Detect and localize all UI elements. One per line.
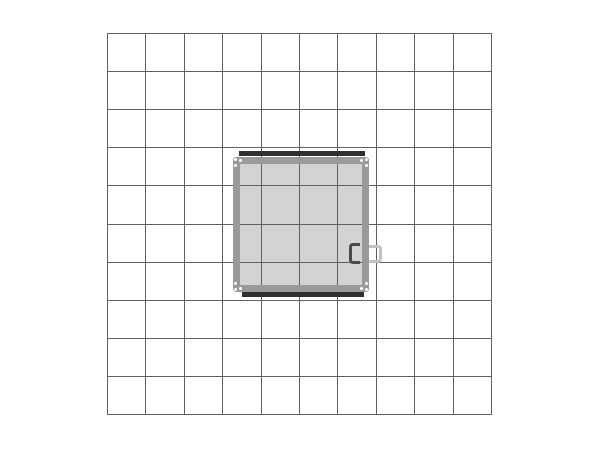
booth-bottom-edge-bar (242, 292, 364, 297)
grid-line-vertical (491, 33, 492, 415)
grid-line-vertical (376, 33, 377, 415)
grid-line-vertical (222, 33, 223, 415)
fastener-dot (360, 287, 363, 290)
grid-line-horizontal (107, 300, 492, 301)
grid-line-horizontal (107, 338, 492, 339)
fastener-dot (239, 287, 242, 290)
grid-line-horizontal (107, 376, 492, 377)
fastener-dot (365, 282, 368, 285)
booth-frame (233, 157, 369, 292)
floor-plan-canvas (0, 0, 600, 450)
grid-line-vertical (453, 33, 454, 415)
grid-line-horizontal (107, 109, 492, 110)
grid-line-vertical (414, 33, 415, 415)
door-handle-outer-icon (369, 245, 382, 263)
booth-top-edge-bar (239, 151, 365, 156)
fastener-dot (365, 164, 368, 167)
fastener-dot (360, 159, 363, 162)
grid-line-horizontal (107, 71, 492, 72)
grid-line-horizontal (107, 147, 492, 148)
grid-line-horizontal (107, 414, 492, 415)
fastener-dot (234, 164, 237, 167)
corner-fastener-bottom-left (233, 280, 245, 292)
fastener-dot (234, 158, 237, 161)
grid-line-vertical (145, 33, 146, 415)
grid-line-vertical (184, 33, 185, 415)
grid-line-horizontal (107, 33, 492, 34)
corner-fastener-bottom-right (357, 280, 369, 292)
fastener-dot (365, 158, 368, 161)
grid-line-vertical (107, 33, 108, 415)
fastener-dot (234, 282, 237, 285)
corner-fastener-top-left (233, 157, 245, 169)
fastener-dot (239, 159, 242, 162)
corner-fastener-top-right (357, 157, 369, 169)
door-handle-inner-icon (349, 243, 360, 264)
fastener-dot (234, 288, 237, 291)
fastener-dot (365, 288, 368, 291)
